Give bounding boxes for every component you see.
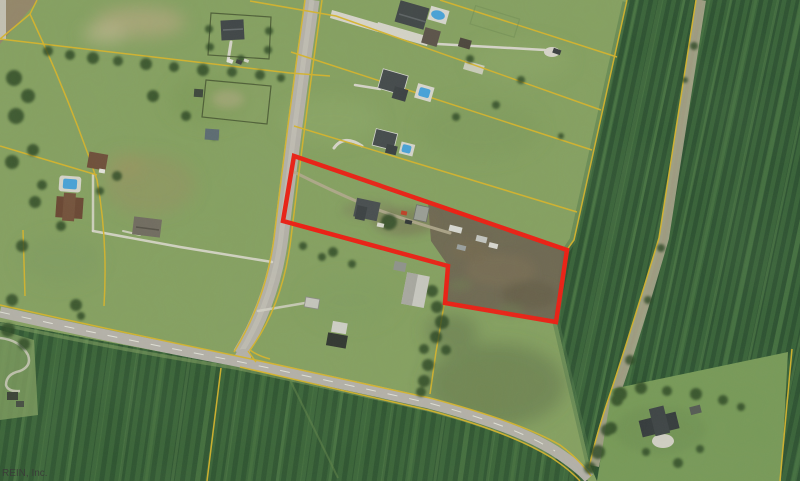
aerial-map: REIN, Inc. <box>0 0 800 481</box>
aerial-map-canvas: REIN, Inc. <box>0 0 800 481</box>
photo-grain-overlay <box>0 0 800 481</box>
watermark: REIN, Inc. <box>2 468 48 479</box>
